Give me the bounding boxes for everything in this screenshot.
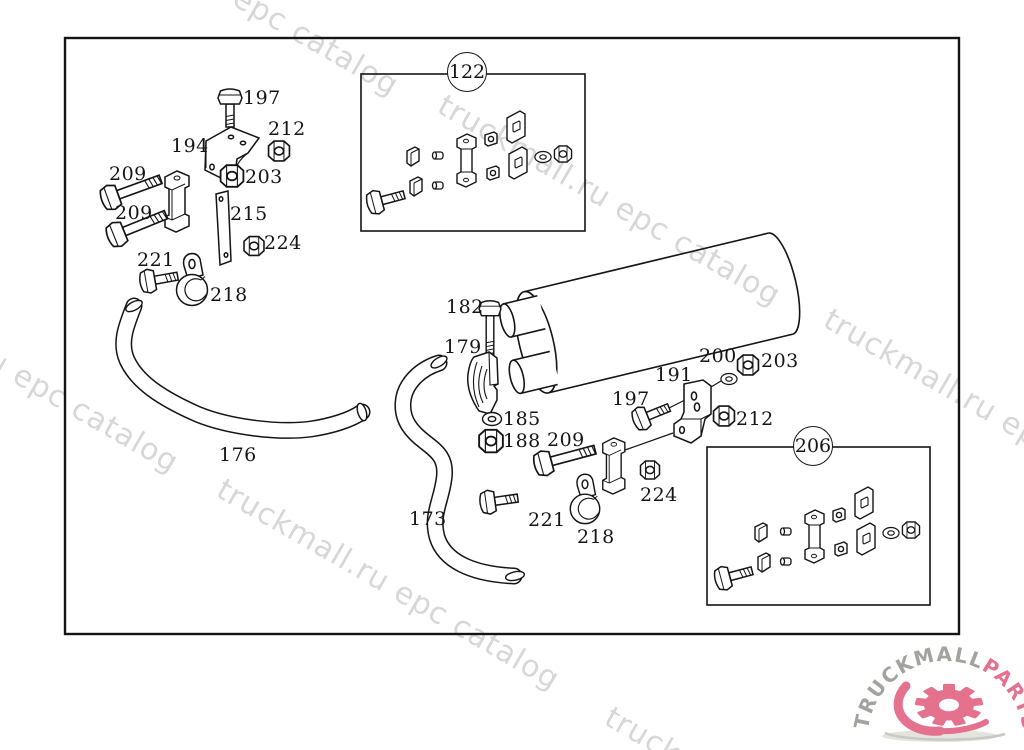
hanger-block-left-drawing [165,171,189,232]
bolt-197-top-drawing [218,89,242,127]
part-label-197-right: 197 [612,390,650,409]
clamp-218-mid-drawing [570,474,599,523]
nut-203-top-drawing [221,165,244,187]
part-label-203-right: 203 [761,352,799,371]
nut-203-right-drawing [738,355,759,375]
part-label-209-b: 209 [115,204,153,223]
part-label-200: 200 [699,347,737,366]
kit-206-contents-drawing [712,487,919,592]
logo-text-truckmall: TRUCKMALL [849,642,988,731]
hanger-block-mid-drawing [603,438,625,494]
kit-badge-206: 206 [793,426,833,466]
part-label-221-mid: 221 [528,511,566,530]
gear-icon [910,680,989,729]
part-label-218-mid: 218 [577,528,615,547]
exploded-diagram: TRUCKMALLPARTS [0,0,1024,750]
muffler-drawing [492,230,808,401]
part-label-221-left: 221 [137,251,175,270]
part-label-212-top: 212 [268,120,306,139]
part-label-203-top: 203 [245,168,283,187]
nut-212-top-drawing [269,141,290,161]
truckmall-parts-logo: TRUCKMALLPARTS [849,642,1024,742]
part-label-173: 173 [409,510,447,529]
part-label-194: 194 [171,137,209,156]
part-label-197-top: 197 [243,89,281,108]
nut-224-left-drawing [244,237,264,256]
part-label-185: 185 [503,410,541,429]
kit-box-122 [361,74,585,231]
parts-catalog-page: truckmall.ru epc catalog truckmall.ru ep… [0,0,1024,750]
nut-212-right-drawing [714,406,735,426]
part-label-218-left: 218 [210,286,248,305]
part-label-224-mid: 224 [640,486,678,505]
part-label-182: 182 [446,298,484,317]
bolt-221-mid-drawing [478,486,519,515]
pipe-173-drawing [403,354,525,582]
mount-179-drawing [468,352,498,414]
kit-badge-122: 122 [447,52,487,92]
part-label-209-mid: 209 [547,431,585,450]
strap-215-drawing [216,191,231,265]
nut-188-drawing [479,430,503,453]
part-label-191: 191 [655,366,693,385]
part-label-188: 188 [503,432,541,451]
nut-224-mid-drawing [641,461,660,479]
part-label-224-left: 224 [264,234,302,253]
pipe-176-drawing [124,298,369,430]
part-label-215: 215 [230,205,268,224]
part-label-212-right: 212 [736,410,774,429]
washer-185-drawing [483,413,502,426]
bracket-191-drawing [674,380,711,443]
part-label-209-a: 209 [109,165,147,184]
clamp-218-left-drawing [177,254,208,306]
part-label-179: 179 [444,338,482,357]
kit-122-contents-drawing [364,111,571,216]
part-label-176: 176 [219,446,257,465]
washer-200-drawing [721,373,737,384]
